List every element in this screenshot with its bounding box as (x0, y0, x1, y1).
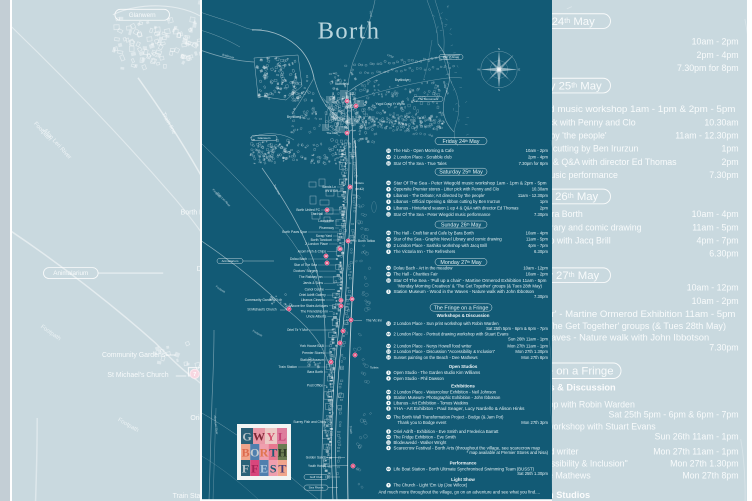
svg-text:YHA - Art Exhibiton - Paul Sea: YHA - Art Exhibiton - Paul Seager, Lucy … (394, 406, 525, 411)
svg-text:Pan Y Graig: Pan Y Graig (443, 55, 460, 59)
svg-text:7.30pm: 7.30pm (709, 170, 738, 180)
svg-text:11am - 5pm: 11am - 5pm (692, 222, 738, 232)
svg-text:Oriel Adrift Gallery: Oriel Adrift Gallery (299, 293, 326, 297)
svg-text:Laundrette: Laundrette (318, 219, 334, 223)
svg-text:Thank you to Bodge event: Thank you to Bodge event (398, 420, 448, 425)
svg-text:Oppersite Premier stores - Lit: Oppersite Premier stores - Litter pick w… (394, 187, 500, 192)
svg-text:11am - 5pm: 11am - 5pm (526, 237, 549, 242)
svg-text:The Monument: The Monument (418, 97, 438, 101)
svg-text:Toilets: Toilets (370, 366, 379, 370)
svg-text:Sea Rivers: Sea Rivers (309, 486, 324, 490)
svg-text:10am - 2pm: 10am - 2pm (526, 148, 549, 153)
svg-text:Pharmacy: Pharmacy (319, 226, 334, 230)
svg-text:2 London Place - Scrabble club: 2 London Place - Scrabble club (394, 155, 453, 160)
svg-text:R: R (260, 445, 269, 459)
svg-text:O: O (250, 445, 259, 459)
svg-text:Saturday 25th May: Saturday 25th May (439, 170, 483, 176)
svg-text:Community Gardens: Community Gardens (245, 298, 276, 302)
svg-text:Surrey Fish and Chips: Surrey Fish and Chips (293, 420, 326, 424)
svg-text:Libanus - Art Exhibition - Tom: Libanus - Art Exhibition - Tomos Watkins (394, 400, 469, 405)
svg-text:Ysgol Craig Yr Wylfa: Ysgol Craig Yr Wylfa (375, 102, 405, 106)
svg-text:7.30pm: 7.30pm (534, 294, 548, 299)
svg-text:Northfield: Northfield (335, 82, 349, 86)
svg-text:Traeth: Traeth (349, 426, 354, 435)
svg-text:Animalarium: Animalarium (222, 259, 239, 263)
svg-text:7: 7 (193, 372, 196, 378)
svg-text:Above the Stairs Antiques: Above the Stairs Antiques (290, 304, 328, 308)
svg-text:Dolau Bach: Dolau Bach (290, 257, 307, 261)
svg-text:Borth Tattoo: Borth Tattoo (358, 239, 375, 243)
svg-text:Sun 26th 11am - 1pm: Sun 26th 11am - 1pm (508, 336, 548, 341)
svg-text:Open Studio - Phil Dawson: Open Studio - Phil Dawson (394, 376, 445, 381)
svg-text:7.30pm: 7.30pm (534, 212, 548, 217)
svg-text:Star Of The Sea - True Tales: Star Of The Sea - True Tales (394, 161, 447, 166)
svg-text:Youth Hostel: Youth Hostel (308, 464, 326, 468)
svg-text:H: H (278, 445, 288, 459)
svg-text:Y Fron: Y Fron (333, 118, 342, 122)
svg-text:G: G (242, 429, 251, 443)
svg-text:16: 16 (346, 131, 349, 135)
svg-text:6.30pm: 6.30pm (709, 249, 738, 259)
svg-text:2pm - 4pm: 2pm - 4pm (528, 155, 549, 160)
svg-text:Oriel Tir Y Mor: Oriel Tir Y Mor (287, 328, 309, 332)
svg-text:T: T (269, 445, 277, 459)
svg-text:Mon 27th 11am - 1pm: Mon 27th 11am - 1pm (507, 344, 548, 349)
svg-text:T: T (278, 461, 286, 475)
svg-text:11am - 12.30pm: 11am - 12.30pm (518, 193, 549, 198)
svg-text:4pm - 7pm: 4pm - 7pm (528, 243, 549, 248)
svg-text:4pm - 7pm: 4pm - 7pm (696, 235, 738, 245)
svg-text:Workshops & Discussion: Workshops & Discussion (437, 313, 490, 318)
svg-text:2pm: 2pm (721, 157, 738, 167)
svg-text:The Fridge Exhibition - Eve Sm: The Fridge Exhibition - Eve Smith (394, 434, 457, 439)
svg-text:'Monday Morning Creatives' & ': 'Monday Morning Creatives' & 'The Get To… (398, 284, 543, 289)
svg-text:The Hall - Charities Fair: The Hall - Charities Fair (394, 272, 439, 277)
svg-text:Sat 25th 5pm - 6pm & 6pm - 7pm: Sat 25th 5pm - 6pm & 6pm - 7pm (486, 326, 548, 331)
svg-text:Sat 25th 1.30pm: Sat 25th 1.30pm (517, 471, 548, 476)
svg-text:F: F (242, 461, 249, 475)
svg-text:2 London Place - Nerys Howell: 2 London Place - Nerys Howell food write… (394, 344, 473, 349)
svg-text:Star Of The Sea - 'Pull up a c: Star Of The Sea - 'Pull up a chair' - Ma… (394, 278, 548, 283)
svg-text:2pm - 4pm: 2pm - 4pm (696, 50, 738, 60)
svg-text:18: 18 (346, 99, 349, 103)
svg-text:And much more throughout the v: And much more throughout the village, go… (379, 489, 541, 494)
svg-text:11am - 12.30pm: 11am - 12.30pm (675, 130, 738, 140)
svg-text:Y: Y (267, 429, 276, 443)
svg-text:Open Studio - The Garden studi: Open Studio - The Garden studio Kim Will… (394, 370, 481, 375)
svg-text:10.30am: 10.30am (532, 187, 549, 192)
svg-text:Libanus - The Debate; Art dire: Libanus - The Debate; Art directed by 't… (394, 193, 486, 198)
svg-text:1pm: 1pm (721, 144, 738, 154)
svg-text:12: 12 (326, 208, 329, 212)
svg-text:Doctors' Surgery: Doctors' Surgery (294, 269, 319, 273)
svg-text:The Hub - Open Morning & Ca: The Hub - Open Morning & Cafe (394, 148, 455, 153)
svg-text:7.30pm for 8pm: 7.30pm for 8pm (519, 161, 549, 166)
svg-text:Sat 25th 5pm - 6pm & 6pm - 7pm: Sat 25th 5pm - 6pm & 6pm - 7pm (608, 410, 738, 420)
svg-text:10: 10 (351, 297, 354, 301)
svg-text:Brynrodyn: Brynrodyn (395, 78, 410, 82)
svg-text:W: W (477, 68, 480, 72)
svg-text:Star of The Sea: Star of The Sea (294, 263, 317, 267)
svg-text:The Fringe on a Fringe: The Fringe on a Fringe (434, 305, 489, 311)
svg-text:Libanus Cinema: Libanus Cinema (301, 298, 325, 302)
svg-text:17: 17 (355, 104, 358, 108)
svg-text:2 London Place - Watercolour E: 2 London Place - Watercolour Exhibition … (394, 389, 497, 394)
svg-text:N: N (498, 47, 500, 51)
svg-text:Borth Paws Spar: Borth Paws Spar (282, 230, 308, 234)
svg-text:The Church - Light 'Em Up (J: The Church - Light 'Em Up (Joe Wilcox) (394, 483, 468, 488)
svg-text:14: 14 (347, 239, 350, 243)
svg-text:Post Office: Post Office (307, 384, 323, 388)
svg-text:Borth: Borth (318, 18, 381, 45)
svg-text:Train Station: Train Station (278, 365, 297, 369)
svg-text:L: L (278, 429, 286, 443)
svg-text:2 London Place - Sun print wor: 2 London Place - Sun print workshop with… (394, 321, 500, 326)
svg-text:S: S (270, 461, 277, 475)
svg-text:10am - 2pm: 10am - 2pm (691, 37, 738, 47)
svg-text:(RNLI): (RNLI) (355, 187, 364, 191)
svg-text:15: 15 (349, 185, 352, 189)
svg-text:Friday 24th May: Friday 24th May (443, 139, 480, 145)
svg-text:7.30pm for 8pm: 7.30pm for 8pm (676, 63, 738, 73)
svg-text:10am - 2pm: 10am - 2pm (691, 296, 738, 306)
svg-text:Bara Borth: Bara Borth (307, 370, 323, 374)
svg-text:Mon 27th 3pm: Mon 27th 3pm (521, 420, 548, 425)
svg-text:13: 13 (339, 247, 342, 251)
svg-text:The Hall: The Hall (311, 212, 324, 216)
svg-text:Jarvis & Sons: Jarvis & Sons (303, 281, 324, 285)
svg-text:The Vic Inn: The Vic Inn (366, 318, 382, 322)
svg-text:The Borth Wall Transformation: The Borth Wall Transformation Project - … (394, 414, 505, 419)
svg-text:Animalarium: Animalarium (53, 270, 88, 277)
svg-text:E: E (260, 461, 268, 475)
svg-text:Station Museum- Photographic E: Station Museum- Photographic Exhibition … (394, 395, 502, 400)
svg-text:The Friendship Inn: The Friendship Inn (301, 310, 329, 314)
svg-text:Golf Club: Golf Club (310, 475, 323, 479)
svg-text:Glanwern: Glanwern (128, 12, 155, 19)
svg-text:Glanwern: Glanwern (258, 136, 271, 140)
svg-text:E: E (518, 68, 520, 72)
svg-text:10: 10 (340, 298, 343, 302)
svg-text:Canol Centre: Canol Centre (305, 287, 325, 291)
svg-text:Station Museum: Station Museum (300, 358, 324, 362)
svg-text:10am - 12pm: 10am - 12pm (686, 283, 738, 293)
svg-text:Toilets: Toilets (355, 181, 364, 185)
svg-text:2 London Place - Discussion "A: 2 London Place - Discussion "Accessibili… (394, 349, 496, 354)
svg-text:10am - 4pm: 10am - 4pm (691, 209, 738, 219)
svg-text:Mon 27th 11am - 1pm: Mon 27th 11am - 1pm (653, 447, 738, 457)
svg-text:S: S (498, 88, 500, 92)
svg-text:Mon 27th 8pm: Mon 27th 8pm (682, 470, 738, 480)
svg-text:Sun 26th 11am - 1pm: Sun 26th 11am - 1pm (654, 432, 738, 442)
svg-text:Sunday 26th May: Sunday 26th May (441, 222, 482, 228)
svg-text:Uncle Albert's: Uncle Albert's (306, 315, 326, 319)
svg-text:Golden Sands: Golden Sands (306, 456, 327, 460)
svg-text:10am - 12pm: 10am - 12pm (523, 265, 548, 270)
svg-text:6.30pm: 6.30pm (534, 249, 548, 254)
svg-text:10am - 2pm: 10am - 2pm (526, 272, 549, 277)
svg-text:Acorn Fish & Chips: Acorn Fish & Chips (298, 250, 327, 254)
svg-text:Star Of The Sea - Peter Wiegol: Star Of The Sea - Peter Wiegold music pe… (394, 212, 492, 217)
svg-text:* map available at Premier Sto: * map available at Premier Stores and Ni… (467, 450, 549, 455)
svg-text:Libanus - Official Opening & r: Libanus - Official Opening & ribbon cutt… (394, 199, 501, 204)
svg-text:B: B (242, 445, 250, 459)
svg-text:Community Gardens: Community Gardens (101, 352, 165, 359)
svg-text:The Railway Inn: The Railway Inn (299, 275, 323, 279)
svg-text:Blodeuwedd - Walker Wright: Blodeuwedd - Walker Wright (394, 440, 448, 445)
svg-text:Premier Stores: Premier Stores (302, 351, 324, 355)
svg-text:Mon 27th 1.30pm: Mon 27th 1.30pm (515, 349, 548, 354)
svg-text:Star of the Sea - Graphic Nove: Star of the Sea - Graphic Novel Library … (394, 237, 503, 242)
svg-text:The Victoria Inn - The Refresh: The Victoria Inn - The Refreshers (394, 249, 456, 254)
svg-text:Light Show: Light Show (451, 477, 475, 482)
svg-text:12: 12 (325, 254, 328, 258)
svg-text:Libanus - Hinterland season 1: Libanus - Hinterland season 1 ep 4 & Q&A… (394, 206, 519, 211)
svg-text:The Hub: The Hub (326, 131, 338, 135)
svg-text:The Hall - Craft fair and Cafe: The Hall - Craft fair and Cafe by Bara B… (394, 230, 475, 235)
svg-text:2 London Place - Portrait draw: 2 London Place - Portrait drawing worksh… (394, 332, 509, 337)
svg-text:Brynowen: Brynowen (287, 115, 301, 119)
svg-text:Life Boat Station - Borth Ulti: Life Boat Station - Borth Ultimate Synch… (394, 466, 535, 471)
svg-text:W: W (253, 429, 265, 443)
svg-text:York House B&B: York House B&B (300, 344, 325, 348)
svg-text:Exhibitions: Exhibitions (451, 384, 475, 389)
svg-text:F: F (251, 461, 258, 475)
svg-text:Oriel Adrift - Exhibition - Ev: Oriel Adrift - Exhibition - Eve Smith an… (394, 429, 500, 434)
svg-text:Mon 27th 1.30pm: Mon 27th 1.30pm (670, 458, 738, 468)
svg-text:7.30pm: 7.30pm (709, 342, 738, 352)
svg-text:Station Museum - Wood in the W: Station Museum - Wood in the Waves - Nat… (394, 289, 535, 294)
svg-text:Mon 27th 8pm: Mon 27th 8pm (521, 355, 548, 360)
svg-text:2 London Place: 2 London Place (305, 242, 328, 246)
svg-text:Sunset painting on the Beach -: Sunset painting on the Beach - Dee Mathe… (394, 355, 478, 360)
svg-text:Dolau Bach - Art in the meadow: Dolau Bach - Art in the meadow (394, 265, 454, 270)
svg-text:It's A Gift: It's A Gift (325, 189, 338, 193)
svg-text:10am - 4pm: 10am - 4pm (526, 230, 549, 235)
svg-text:1pm: 1pm (540, 199, 549, 204)
svg-text:St Michael's Church: St Michael's Church (107, 372, 168, 379)
svg-text:Star Of The Sea - Peter Wiegol: Star Of The Sea - Peter Wiegold music wo… (394, 180, 548, 185)
svg-text:2pm: 2pm (540, 206, 549, 211)
svg-text:Open Studios: Open Studios (449, 364, 478, 369)
svg-text:Performance: Performance (450, 461, 477, 466)
svg-text:St Michael's Church: St Michael's Church (247, 308, 276, 312)
svg-text:10.30am: 10.30am (704, 117, 738, 127)
svg-text:2 London Place - Sashiko works: 2 London Place - Sashiko workshop with J… (394, 243, 488, 248)
